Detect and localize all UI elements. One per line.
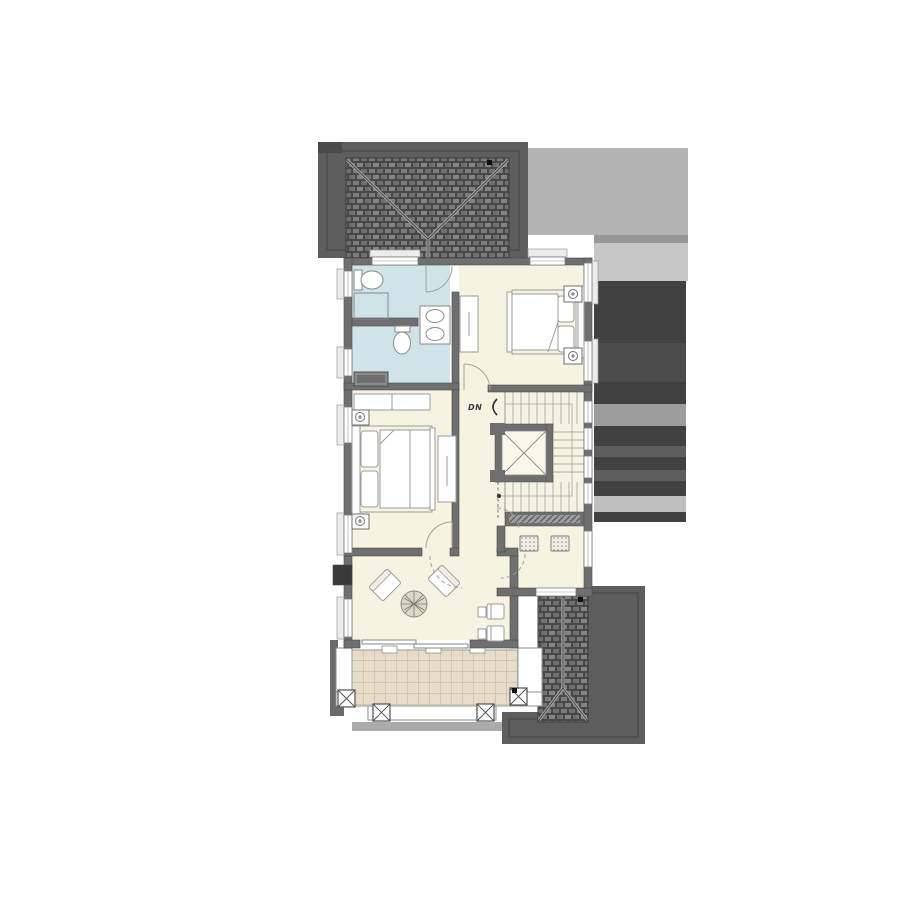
shadow-right-4	[594, 426, 686, 446]
shadow-right-9	[594, 512, 686, 522]
toilet-2-tank	[395, 326, 410, 332]
appliance-mat-1	[520, 536, 538, 551]
shadow-right-2	[594, 343, 686, 382]
side-table-1	[478, 607, 486, 617]
bath-cabinet-inner	[357, 375, 385, 383]
floor-plan-canvas: DN	[0, 0, 900, 900]
shadow-right-6	[594, 457, 686, 470]
shadow-right-8	[594, 481, 686, 496]
wall-utility-bottom-2	[576, 588, 592, 596]
bedroom2-footboard	[507, 292, 512, 352]
stair-walk-start-dot	[497, 494, 501, 498]
floor-plan-page: DN	[0, 0, 900, 900]
plant-table	[401, 591, 427, 617]
terrace-tiles	[352, 650, 518, 706]
toilet-2-bowl	[394, 332, 411, 354]
shadow-right-3	[594, 382, 686, 404]
shadow-right-glow-1	[594, 404, 686, 426]
niche-chair-1	[487, 604, 504, 619]
wall-bedroom2-stairs	[488, 385, 592, 392]
wall-living-bottom-1	[344, 640, 360, 648]
wall-pier-left	[333, 565, 352, 585]
roof-br-vent	[578, 597, 583, 602]
master-footboard	[430, 428, 435, 510]
master-pillow-1	[361, 431, 378, 467]
wall-utility-bottom-1	[497, 588, 536, 596]
shadow-right-glow-2	[594, 496, 686, 512]
roof-top-vent	[487, 160, 492, 165]
wall-master-living-2	[450, 548, 459, 556]
stair-base-wall	[505, 512, 584, 526]
shadow-top-right	[528, 148, 688, 235]
shadow-right-1	[594, 281, 686, 343]
roof-top	[318, 142, 528, 258]
stair-wall-stub-2	[490, 470, 505, 482]
stairs-dn-label: DN	[468, 403, 482, 412]
shadow-right-7	[594, 470, 686, 481]
shadow-band-2	[594, 243, 688, 281]
side-table-2	[478, 629, 486, 639]
niche-chair-2	[487, 626, 504, 641]
master-pillow-2	[361, 471, 378, 507]
wall-living-right	[510, 556, 518, 648]
wall-bath-hall	[452, 292, 459, 390]
terrace-dot	[512, 688, 517, 693]
sink-1	[426, 310, 444, 323]
appliance-mat-2	[551, 536, 569, 551]
shadow-band-1	[594, 235, 688, 243]
stair-wall-stub-1	[490, 423, 505, 435]
master-blanket	[380, 430, 430, 508]
master-headboard	[352, 426, 360, 514]
sink-2	[426, 328, 444, 341]
terrace-shadow-bottom	[352, 722, 502, 731]
wall-left	[344, 258, 352, 648]
toilet-1-bowl	[361, 271, 383, 289]
shadow-right-5	[594, 446, 686, 457]
wall-utility-left	[497, 526, 505, 552]
wall-master-living-1	[344, 548, 422, 556]
